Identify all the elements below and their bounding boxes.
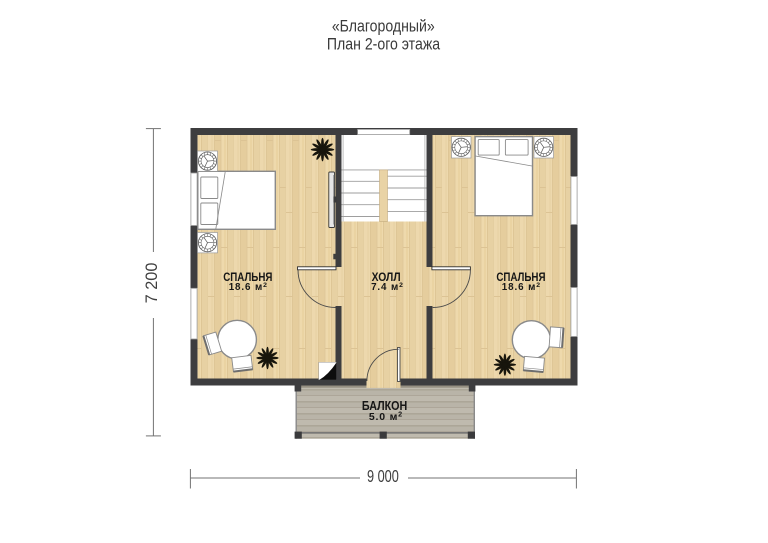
- svg-text:18.6 м2: 18.6 м2: [229, 282, 267, 293]
- svg-text:5.0 м2: 5.0 м2: [369, 410, 402, 423]
- svg-text:9 000: 9 000: [367, 467, 399, 487]
- svg-text:«Благородный»: «Благородный»: [332, 18, 435, 36]
- svg-text:План 2-ого этажа: План 2-ого этажа: [327, 36, 441, 54]
- svg-text:7 200: 7 200: [143, 263, 161, 304]
- svg-text:18.6 м2: 18.6 м2: [502, 282, 540, 293]
- svg-text:7.4 м2: 7.4 м2: [371, 282, 403, 293]
